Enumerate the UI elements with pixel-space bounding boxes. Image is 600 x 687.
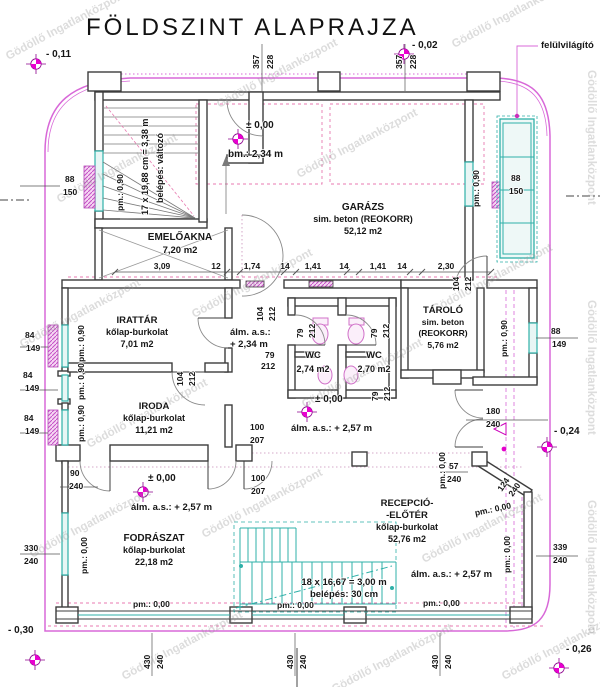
room-name-recepcio: RECEPCIÓ- <box>381 499 434 509</box>
level-marker <box>133 482 153 502</box>
dim: 88 <box>511 174 520 183</box>
room-area: 7,01 m2 <box>120 340 153 349</box>
room-name-wc: WC <box>366 351 382 361</box>
parapet-label: pm.: 0,00 <box>133 600 170 609</box>
room-area: 52,76 m2 <box>388 535 426 544</box>
room-area: 7,20 m2 <box>163 246 198 256</box>
dim: 212 <box>188 372 197 386</box>
dim: 1,41 <box>370 262 387 271</box>
level-value: - 0,11 <box>46 50 71 60</box>
level-value: - 0,24 <box>554 427 580 437</box>
dim: 240 <box>299 655 308 669</box>
parapet-label: pm.: 0,90 <box>116 174 125 211</box>
dim: 212 <box>382 324 391 338</box>
dim: 228 <box>409 55 418 69</box>
dim: 212 <box>261 362 275 371</box>
ceiling-note: álm. a.s.: + 2,57 m <box>131 503 212 513</box>
dim: 330 <box>24 544 38 553</box>
dim: 84 <box>24 414 33 423</box>
room-area: 5,76 m2 <box>427 341 458 350</box>
room-area: 2,74 m2 <box>296 365 329 374</box>
dim: 84 <box>25 331 34 340</box>
dim: 149 <box>25 427 39 436</box>
floor-plan-drawing <box>0 0 600 687</box>
ceiling-note: álm. a.s.: + 2,57 m <box>411 570 492 580</box>
level-value: ± 0,00 <box>315 395 343 405</box>
dim: 240 <box>444 655 453 669</box>
dim: 1,41 <box>305 262 322 271</box>
dim: 207 <box>251 487 265 496</box>
dim: 14 <box>397 262 406 271</box>
dim: 240 <box>553 556 567 565</box>
dim: 240 <box>486 420 500 429</box>
ceiling-note: álm. a.s.: <box>230 328 271 338</box>
dim: 430 <box>431 655 440 669</box>
dim: 3,09 <box>154 262 171 271</box>
dim: 212 <box>383 387 392 401</box>
ceiling-note: álm. a.s.: + 2,57 m <box>291 424 372 434</box>
room-finish: (REOKORR) <box>418 329 467 338</box>
dim: 240 <box>69 482 83 491</box>
dim: 149 <box>25 384 39 393</box>
level-marker <box>228 129 248 149</box>
dim: 430 <box>286 655 295 669</box>
parapet-label: pm.: 0,90 <box>77 405 86 442</box>
level-value: - 0,30 <box>8 626 34 636</box>
dim: 79 <box>370 329 379 338</box>
room-finish: kőlap-burkolat <box>123 546 185 555</box>
dim: 240 <box>447 475 461 484</box>
dim: 212 <box>464 277 473 291</box>
room-name-emeloakna: EMELŐAKNA <box>148 233 212 243</box>
dim: 57 <box>449 462 458 471</box>
room-area: 11,21 m2 <box>135 426 173 435</box>
dim: 149 <box>552 340 566 349</box>
stair-note: 18 x 16,67 = 3,00 m <box>301 578 386 588</box>
level-value: ± 0,00 <box>246 121 274 131</box>
dim: 104 <box>452 277 461 291</box>
stair-note: belépés: 30 cm <box>310 590 378 600</box>
room-finish: kőlap-burkolat <box>123 414 185 423</box>
dim: 12 <box>211 262 220 271</box>
room-area: 22,18 m2 <box>135 558 173 567</box>
dim: 207 <box>250 436 264 445</box>
room-area: 2,70 m2 <box>357 365 390 374</box>
dim: 150 <box>509 187 523 196</box>
level-value: - 0,02 <box>412 41 438 51</box>
level-marker <box>25 650 45 670</box>
dim: 240 <box>24 557 38 566</box>
dim: 150 <box>63 188 77 197</box>
dim: 14 <box>339 262 348 271</box>
stair-note: belépés: változó <box>156 133 165 203</box>
room-area: 52,12 m2 <box>344 227 382 236</box>
skylight-callout: felülvilágító <box>541 41 594 51</box>
level-marker <box>297 402 317 422</box>
dim: 180 <box>486 407 500 416</box>
dim: 212 <box>268 307 277 321</box>
dim: 212 <box>308 324 317 338</box>
dim: 88 <box>551 327 560 336</box>
dim: 104 <box>256 307 265 321</box>
dim: 100 <box>250 423 264 432</box>
level-marker <box>26 54 46 74</box>
dim: 88 <box>65 175 74 184</box>
level-marker <box>537 437 557 457</box>
room-finish: sim. beton (REOKORR) <box>313 215 413 224</box>
room-name-iroda: IRODA <box>139 402 170 412</box>
room-name-recepcio: -ELŐTÉR <box>386 511 428 521</box>
dim: 2,30 <box>438 262 455 271</box>
clear-height-note: bm.: 2,34 m <box>228 150 283 160</box>
room-finish: sim. beton <box>422 318 465 327</box>
level-value: - 0,26 <box>566 645 592 655</box>
dim: 100 <box>251 474 265 483</box>
room-name-fodraszat: FODRÁSZAT <box>124 534 185 544</box>
parapet-label: pm.: 0,00 <box>438 452 447 489</box>
dim: 79 <box>265 351 274 360</box>
room-finish: kőlap-burkolat <box>376 523 438 532</box>
dim: 240 <box>156 655 165 669</box>
dim: 79 <box>296 329 305 338</box>
dim: 104 <box>176 372 185 386</box>
ceiling-note: + 2,34 m <box>230 340 268 350</box>
level-marker <box>549 658 569 678</box>
room-name-wc: WC <box>305 351 321 361</box>
dim: 228 <box>266 55 275 69</box>
parapet-label: pm.: 0,00 <box>80 537 89 574</box>
room-name-irattar: IRATTÁR <box>117 316 158 326</box>
dim: 90 <box>70 469 79 478</box>
parapet-label: pm.: 0,90 <box>500 320 509 357</box>
dim: 84 <box>23 371 32 380</box>
dim: 79 <box>371 392 380 401</box>
room-name-garazs: GARÁZS <box>342 203 384 213</box>
floor-plan-page: Gödöllő Ingatlanközpont Gödöllő Ingatlan… <box>0 0 600 687</box>
parapet-label: pm.: 0,00 <box>503 536 512 573</box>
level-value: ± 0,00 <box>148 474 176 484</box>
room-name-tarolo: TÁROLÓ <box>423 306 463 316</box>
parapet-label: pm.: 0,90 <box>77 363 86 400</box>
room-finish: kőlap-burkolat <box>106 328 168 337</box>
dim: 357 <box>395 55 404 69</box>
dim: 14 <box>280 262 289 271</box>
plan-title: FÖLDSZINT ALAPRAJZA <box>86 14 419 42</box>
level-markers <box>25 44 569 678</box>
dim: 149 <box>26 344 40 353</box>
dim: 357 <box>252 55 261 69</box>
parapet-label: pm.: 0,00 <box>277 601 314 610</box>
dim: 430 <box>143 655 152 669</box>
parapet-label: pm.: 0,90 <box>77 325 86 362</box>
dim: 1,74 <box>244 262 261 271</box>
stair-note: 17 x 19,88 cm = 3,38 m <box>141 119 150 215</box>
dim: 339 <box>553 543 567 552</box>
parapet-label: pm.: 0,90 <box>472 170 481 207</box>
parapet-label: pm.: 0,00 <box>423 599 460 608</box>
